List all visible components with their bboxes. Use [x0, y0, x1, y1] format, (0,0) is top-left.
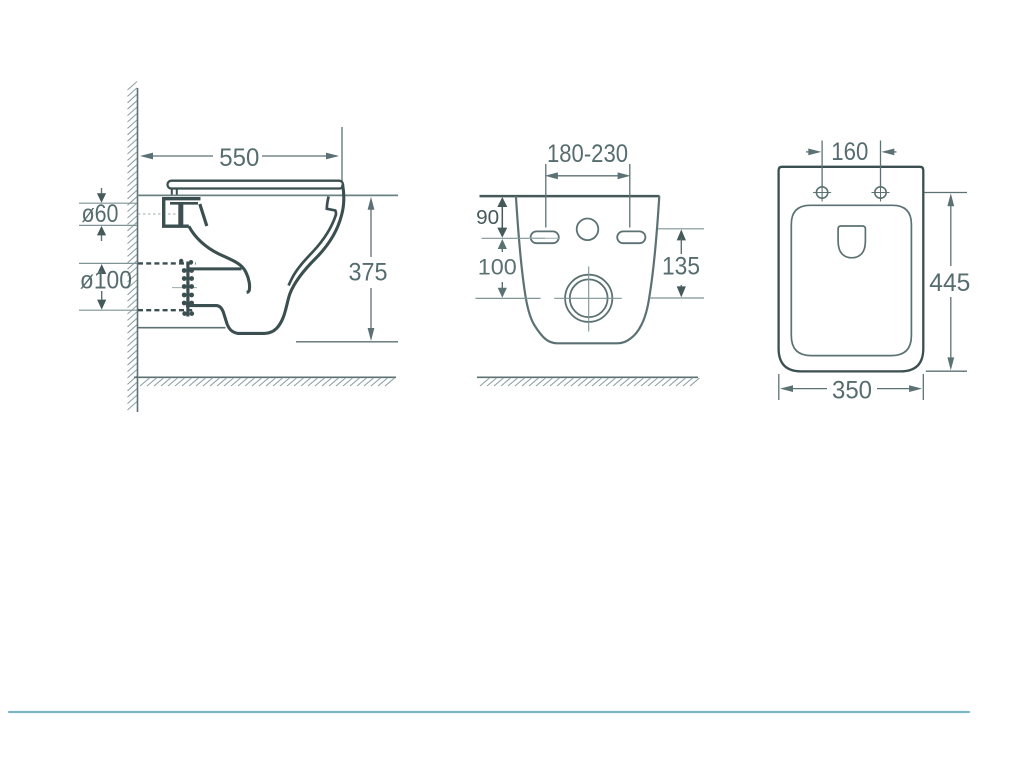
- svg-text:375: 375: [349, 259, 388, 287]
- svg-text:100: 100: [478, 255, 517, 280]
- svg-text:135: 135: [662, 253, 700, 281]
- svg-text:180-230: 180-230: [547, 140, 628, 168]
- svg-text:160: 160: [831, 138, 868, 166]
- svg-text:ø60: ø60: [82, 200, 119, 228]
- svg-text:90: 90: [476, 207, 499, 229]
- svg-text:445: 445: [929, 269, 970, 297]
- svg-text:550: 550: [219, 144, 259, 172]
- svg-text:ø100: ø100: [80, 266, 132, 294]
- svg-text:350: 350: [832, 376, 872, 404]
